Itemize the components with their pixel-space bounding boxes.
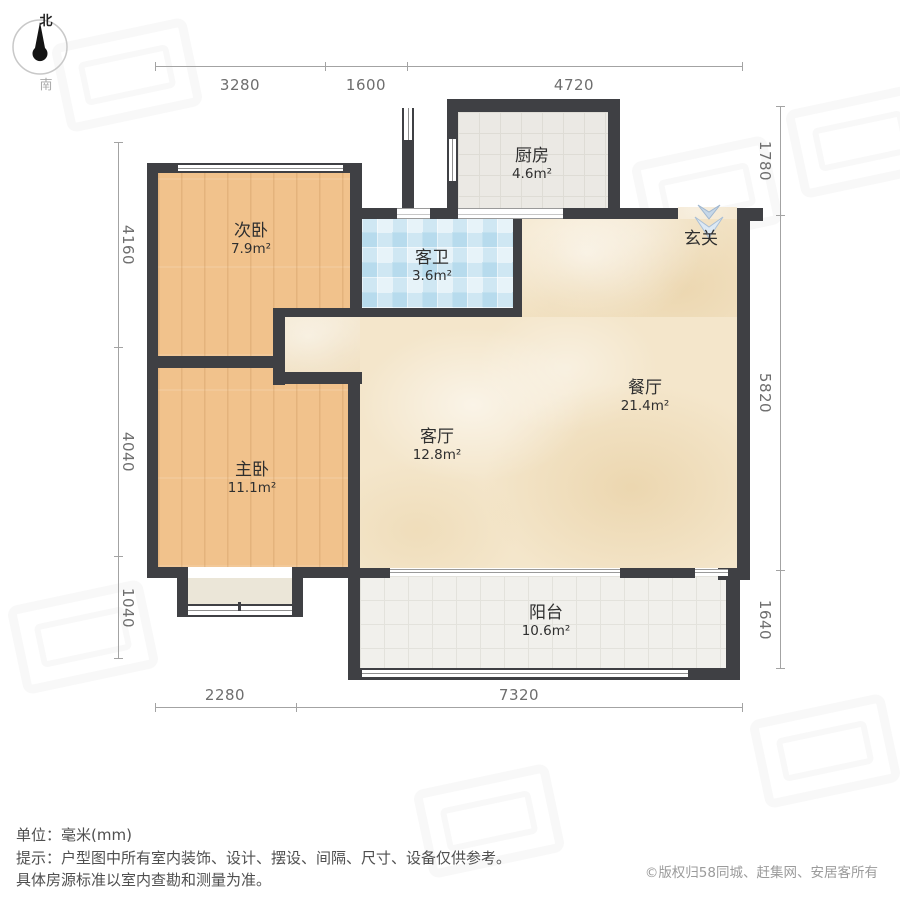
dimension-value: 4160	[119, 215, 137, 275]
dimension-value: 3280	[210, 76, 270, 94]
dimension-value: 4040	[119, 422, 137, 482]
wall	[273, 308, 522, 317]
wall	[147, 567, 188, 578]
floor-bay-window	[188, 578, 292, 605]
dimension-value: 5820	[756, 363, 774, 423]
room-name: 次卧	[206, 221, 296, 241]
room-label-master-bedroom: 主卧 11.1m²	[207, 460, 297, 496]
wall	[177, 578, 188, 617]
dimension-value: 7320	[489, 686, 549, 704]
wall	[350, 163, 362, 317]
wall	[273, 308, 285, 385]
sliding-door	[390, 569, 620, 576]
wall	[737, 208, 750, 578]
copyright: ©版权归58同城、赶集网、安居客所有	[645, 861, 878, 881]
room-name: 主卧	[207, 460, 297, 480]
disclaimer-line1: 提示：户型图中所有室内装饰、设计、摆设、间隔、尺寸、设备仅供参考。	[16, 847, 511, 868]
disclaimer-line2: 具体房源标准以室内查勘和测量为准。	[16, 869, 271, 890]
wall	[348, 372, 360, 578]
wall	[402, 140, 414, 208]
watermark	[784, 83, 900, 200]
room-label-kitchen: 厨房 4.6m²	[487, 146, 577, 182]
dimension-line-bottom	[155, 707, 742, 708]
room-area: 4.6m²	[487, 166, 577, 182]
window-mullion	[238, 602, 241, 611]
room-label-entry: 玄关	[666, 229, 736, 249]
tick	[325, 62, 326, 71]
window	[402, 108, 414, 140]
tick	[114, 556, 123, 557]
balcony-window	[362, 668, 688, 679]
dimension-value: 2280	[195, 686, 255, 704]
wall	[348, 567, 360, 680]
dimension-line-top	[155, 66, 742, 67]
room-label-dining-room: 餐厅 21.4m²	[600, 378, 690, 414]
room-name: 阳台	[501, 603, 591, 623]
room-label-living-room: 客厅 12.8m²	[392, 427, 482, 463]
tick	[776, 570, 785, 571]
room-label-second-bedroom: 次卧 7.9m²	[206, 221, 296, 257]
window	[178, 163, 343, 173]
compass: 北 南	[6, 4, 86, 94]
room-name: 厨房	[487, 146, 577, 166]
dimension-value: 1040	[119, 578, 137, 638]
wall	[513, 208, 522, 317]
room-name: 餐厅	[600, 378, 690, 398]
room-area: 3.6m²	[387, 268, 477, 284]
watermark	[748, 693, 900, 810]
room-name: 客厅	[392, 427, 482, 447]
room-area: 21.4m²	[600, 398, 690, 414]
wall	[726, 568, 740, 680]
sliding-window	[695, 569, 728, 576]
wall	[620, 568, 695, 578]
tick	[155, 703, 156, 712]
kitchen-door	[458, 208, 563, 219]
tick	[776, 215, 785, 216]
room-name: 客卫	[387, 248, 477, 268]
room-area: 11.1m²	[207, 480, 297, 496]
wall	[358, 568, 390, 578]
wall	[147, 356, 273, 368]
tick	[776, 106, 785, 107]
room-label-bathroom: 客卫 3.6m²	[387, 248, 477, 284]
room-label-balcony: 阳台 10.6m²	[501, 603, 591, 639]
dimension-value: 4720	[544, 76, 604, 94]
room-area: 10.6m²	[501, 623, 591, 639]
wall	[147, 163, 158, 578]
wall	[563, 208, 678, 219]
dimension-line-right	[780, 106, 781, 668]
room-name: 玄关	[666, 229, 736, 249]
wall	[608, 99, 620, 218]
bathroom-door	[397, 208, 430, 219]
compass-south-label: 南	[6, 74, 86, 93]
dimension-value: 1640	[756, 590, 774, 650]
compass-north-label: 北	[6, 10, 86, 29]
room-area: 12.8m²	[392, 447, 482, 463]
dimension-value: 1780	[756, 131, 774, 191]
tick	[155, 62, 156, 71]
tick	[114, 142, 123, 143]
window	[447, 139, 458, 181]
tick	[296, 703, 297, 712]
tick	[114, 347, 123, 348]
tick	[742, 703, 743, 712]
room-area: 7.9m²	[206, 241, 296, 257]
wall	[447, 99, 458, 139]
wall	[430, 208, 458, 219]
dimension-value: 1600	[336, 76, 396, 94]
floor-hallway	[285, 317, 362, 372]
tick	[407, 62, 408, 71]
tick	[114, 658, 123, 659]
tick	[742, 62, 743, 71]
floor-plan: 次卧 7.9m² 主卧 11.1m² 客厅 12.8m² 餐厅 21.4m² 厨…	[0, 0, 900, 900]
wall	[447, 99, 620, 112]
unit-note: 单位：毫米(mm)	[16, 824, 132, 845]
tick	[776, 668, 785, 669]
